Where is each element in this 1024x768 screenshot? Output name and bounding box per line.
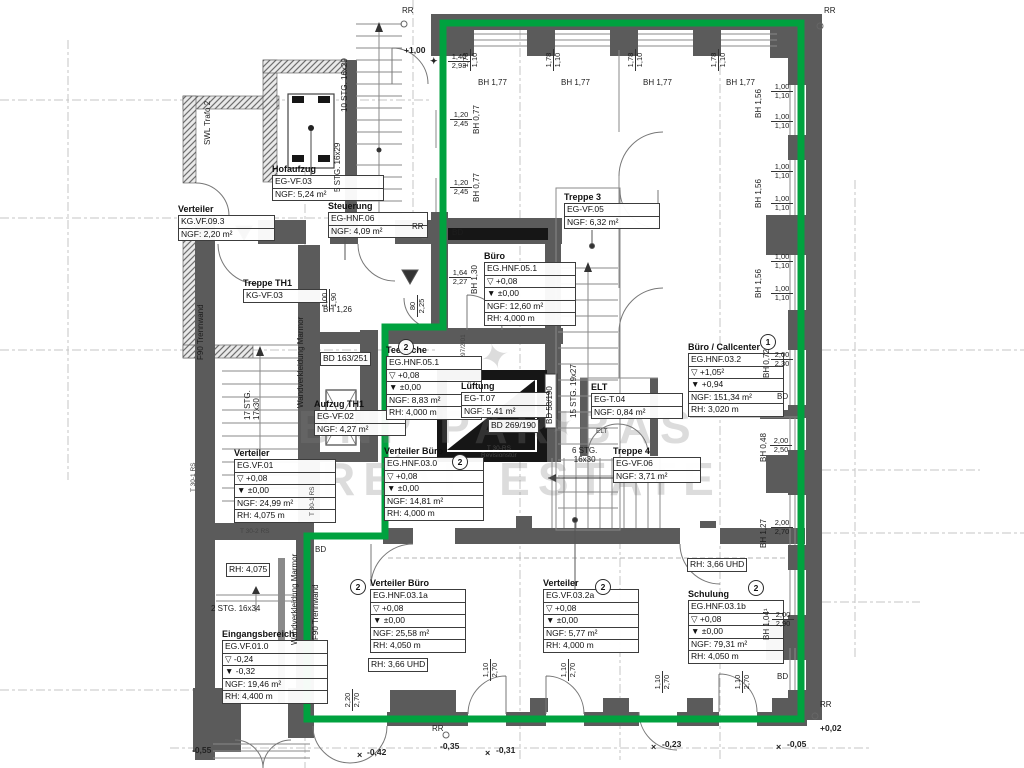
room-line: ▼ ±0,00 — [544, 614, 638, 627]
door-type-label: T 30-RS Revisionstür — [481, 445, 517, 459]
room-title: Büro — [484, 251, 576, 262]
door-dim: 1,10 2,70 — [733, 670, 751, 694]
window-dim: 2,00 2,50 — [769, 436, 793, 454]
room-line: RH: 4,000 m — [385, 507, 483, 520]
stair-count-label: 10 STG. 16x29 — [340, 58, 349, 112]
room-title: Schulung — [688, 589, 784, 600]
room-line: NGF: 19,46 m² — [223, 678, 327, 691]
room-line: EG.VF.01 — [235, 460, 335, 472]
window-height-label: BH 0,77 — [472, 173, 481, 202]
window-dim: 1,78 1,10 — [544, 48, 562, 72]
window-dim: 1,00 1,10 — [770, 194, 794, 212]
room-label-buero: Büro EG.HNF.05.1▽ +0,08▼ ±0,00NGF: 12,60… — [484, 251, 576, 326]
wall-note: F90 Trennwand — [196, 304, 205, 360]
benchmark-icon: × — [651, 742, 656, 752]
bd-box: BD 163/251 — [320, 352, 371, 366]
room-title: Treppe 3 — [564, 192, 660, 203]
window-height-label: BH 1,77 — [726, 78, 755, 87]
level-label: -0,35 — [440, 742, 459, 751]
room-title: ELT — [591, 382, 683, 393]
window-dim: 1,78 1,10 — [626, 48, 644, 72]
room-title: Verteiler Büro — [370, 578, 466, 589]
room-line: RH: 4,400 m — [223, 690, 327, 703]
level-label: +0,02 — [820, 724, 842, 733]
rr-label: RR — [820, 700, 832, 709]
window-dim: 1,64 2,27 — [448, 268, 472, 286]
room-line: ▼ ±0,00 — [385, 482, 483, 495]
door-dim: 1,10 2,70 — [481, 658, 499, 682]
rh-box: RH: 4,075 — [226, 563, 270, 577]
window-dim: 1,20 2,45 — [449, 178, 473, 196]
room-line: EG.VF.03.2a — [544, 590, 638, 602]
door-dim: 1,10 2,70 — [653, 670, 671, 694]
door-type-label: T 30-2 RS — [240, 528, 270, 535]
window-dim: 2,00 2,70 — [770, 518, 794, 536]
bd-label: BD — [777, 672, 788, 681]
benchmark-icon: × — [485, 748, 490, 758]
rh-box: RH: 3,66 UHD — [368, 658, 428, 672]
stair-count-label: 6 STG. 16x30 — [572, 446, 597, 464]
window-height-label: BH 1,26 — [323, 305, 352, 314]
room-line: EG-VF.05 — [565, 204, 659, 216]
window-height-label: BH 1,56 — [754, 179, 763, 208]
window-height-label: BH 1,77 — [561, 78, 590, 87]
room-line: ▽ +0,08 — [387, 369, 481, 382]
room-line: NGF: 6,32 m² — [565, 216, 659, 229]
room-label-verteiler-buero-1a: Verteiler Büro EG.HNF.03.1a▽ +0,08▼ ±0,0… — [370, 578, 466, 653]
rh-box: RH: 3,66 UHD — [687, 558, 747, 572]
elt-door-label: ELT — [596, 428, 607, 435]
room-line: ▼ +0,94 — [689, 378, 783, 391]
window-dim: 1,20 2,45 — [449, 110, 473, 128]
wall-note: Wandverkleidung Marmor — [290, 554, 299, 645]
room-line: ▽ +0,08 — [485, 275, 575, 288]
room-line: EG-T.07 — [462, 393, 548, 405]
room-line: NGF: 14,81 m² — [385, 495, 483, 508]
room-label-treppe3: Treppe 3 EG-VF.05NGF: 6,32 m² — [564, 192, 660, 229]
room-line: EG.HNF.03.1a — [371, 590, 465, 602]
trafo-label: SWL Trafo 2 — [203, 101, 212, 145]
stair-count-label: 17 STG. 17x30 — [243, 390, 261, 420]
room-title: Verteiler — [234, 448, 336, 459]
window-dim: 1,00 1,10 — [770, 82, 794, 100]
window-height-label: BH 1,04¹ — [762, 608, 771, 640]
stair-count-label: 2 STG. 16x34 — [211, 604, 260, 613]
room-label-verteiler-32a: Verteiler EG.VF.03.2a▽ +0,08▼ ±0,00NGF: … — [543, 578, 639, 653]
room-line: NGF: 5,24 m² — [273, 188, 383, 201]
rr-label: RR — [402, 6, 414, 15]
door-dim: 80 2,25 — [408, 294, 426, 318]
window-dim: 1,00 1,10 — [770, 112, 794, 130]
room-title: Lüftung — [461, 381, 549, 392]
room-line: EG-T.04 — [592, 394, 682, 406]
benchmark-icon: × — [776, 742, 781, 752]
wall-note: Wandverkleidung Marmor — [296, 317, 305, 408]
room-line: ▼ ±0,00 — [235, 484, 335, 497]
window-dim: 1,00 1,10 — [770, 284, 794, 302]
room-title: Treppe 4 — [613, 446, 701, 457]
room-line: NGF: 25,58 m² — [371, 627, 465, 640]
bd-label: BD — [315, 545, 326, 554]
door-type-label: T 30-1 RS — [190, 462, 197, 492]
room-line: EG.HNF.05.1 — [387, 357, 481, 369]
room-line: NGF: 5,77 m² — [544, 627, 638, 640]
rr-label: RR — [432, 724, 444, 733]
level-label: -0,42 — [367, 748, 386, 757]
room-line: EG.HNF.05.1 — [485, 263, 575, 275]
room-title: Hofaufzug — [272, 164, 384, 175]
room-line: ▽ +0,08 — [385, 470, 483, 483]
room-title: Verteiler Büro — [384, 446, 484, 457]
door-dim: 2,20 2,70 — [343, 688, 361, 712]
stair-count-label: 15 STG. 19x27 — [569, 364, 578, 418]
level-label: -0,55 — [192, 746, 211, 755]
zone-badge: 2 — [748, 580, 764, 596]
window-height-label: BH 1,77 — [643, 78, 672, 87]
window-dim: 1,00 1,10 — [770, 252, 794, 270]
room-line: RH: 4,075 m — [235, 509, 335, 522]
window-height-label: BH 1,77 — [478, 78, 507, 87]
room-line: EG.HNF.03.0 — [385, 458, 483, 470]
room-line: RH: 4,000 m — [544, 639, 638, 652]
level-label: -0,31 — [496, 746, 515, 755]
room-title: Treppe TH1 — [243, 278, 327, 289]
room-line: NGF: 0,84 m² — [592, 406, 682, 419]
window-dim: 1,78 1,10 — [709, 48, 727, 72]
room-line: ▼ -0,32 — [223, 665, 327, 678]
annotation-layer: Hofaufzug EG-VF.03NGF: 5,24 m² Verteiler… — [0, 0, 1024, 768]
window-height-label: BH 1,56 — [754, 89, 763, 118]
zone-badge: 2 — [398, 339, 414, 355]
bd-label: BD — [777, 392, 788, 401]
door-type-label: T 30-1 RS — [309, 486, 316, 516]
rr-label: RR — [412, 222, 424, 231]
room-line: NGF: 4,27 m² — [315, 423, 405, 436]
room-line: EG-VF.03 — [273, 176, 383, 188]
room-line: ▼ ±0,00 — [485, 287, 575, 300]
room-line: ▽ +0,08 — [544, 602, 638, 615]
room-title: Verteiler — [178, 204, 275, 215]
window-dim: 2,00 2,90 — [771, 610, 795, 628]
bd-label: BD 58/190 — [545, 386, 554, 424]
ref-number: 97/2/01 — [460, 334, 467, 356]
room-line: ▼ ±0,00 — [371, 614, 465, 627]
room-line: RH: 4,050 m — [371, 639, 465, 652]
zone-badge: 2 — [350, 579, 366, 595]
room-line: ▽ +0,08 — [371, 602, 465, 615]
zone-badge: 2 — [452, 454, 468, 470]
level-label: +1,00 — [404, 46, 426, 55]
room-line: NGF: 12,60 m² — [485, 300, 575, 313]
room-label-hofaufzug: Hofaufzug EG-VF.03NGF: 5,24 m² — [272, 164, 384, 201]
rr-label: RR — [824, 6, 836, 15]
stair-count-label: 5 STG. 16x29 — [333, 143, 342, 192]
window-height-label: BH 1,30 — [470, 265, 479, 294]
zone-badge: 2 — [595, 579, 611, 595]
zone-badge: 1 — [760, 334, 776, 350]
bd-box: BD 269/190 — [488, 419, 539, 433]
floor-plan-page: BNP PARIBAS REAL ESTATE ✦ ✦ ✦ Hofaufzug … — [0, 0, 1024, 768]
room-line: RH: 4,000 m — [485, 312, 575, 325]
room-line: KG-VF.03 — [244, 290, 326, 302]
room-label-verteiler-buero: Verteiler Büro EG.HNF.03.0▽ +0,08▼ ±0,00… — [384, 446, 484, 521]
window-dim: 1,00 1,10 — [770, 162, 794, 180]
room-title: Verteiler — [543, 578, 639, 589]
bd-label: BD — [452, 228, 463, 237]
benchmark-icon: ✦ — [430, 56, 438, 67]
room-line: NGF: 2,20 m² — [179, 228, 274, 241]
room-line: RH: 3,020 m — [689, 403, 783, 416]
window-height-label: BH 1,56 — [754, 269, 763, 298]
room-line: NGF: 24,99 m² — [235, 497, 335, 510]
room-line: NGF: 151,34 m² — [689, 391, 783, 404]
room-label-elt: ELT EG-T.04NGF: 0,84 m² — [591, 382, 683, 419]
wall-note: F90 Trennwand — [311, 584, 320, 640]
room-label-verteiler-eg: Verteiler EG.VF.01▽ +0,08▼ ±0,00NGF: 24,… — [234, 448, 336, 523]
door-dim: 1,10 2,70 — [559, 658, 577, 682]
room-label-lueftung: Lüftung EG-T.07NGF: 5,41 m² — [461, 381, 549, 418]
room-line: NGF: 3,71 m² — [614, 470, 700, 483]
window-dim: 1,40 2,93 — [447, 52, 471, 70]
room-label-eingangsbereich: Eingangsbereich EG.VF.01.0▽ -0,24▼ -0,32… — [222, 629, 328, 704]
room-line: EG.VF.01.0 — [223, 641, 327, 653]
room-label-verteiler-kg: Verteiler KG.VF.09.3NGF: 2,20 m² — [178, 204, 275, 241]
room-line: EG-VF.06 — [614, 458, 700, 470]
room-line: KG.VF.09.3 — [179, 216, 274, 228]
room-line: NGF: 5,41 m² — [462, 405, 548, 418]
window-height-label: BH 1,27 — [759, 519, 768, 548]
room-line: ▽ +0,08 — [235, 472, 335, 485]
window-dim: 2,00 2,30 — [770, 350, 794, 368]
room-label-steuerung: Steuerung EG-HNF.06NGF: 4,09 m² — [328, 201, 428, 238]
room-label-treppe4: Treppe 4 EG-VF.06NGF: 3,71 m² — [613, 446, 701, 483]
window-height-label: BH 0,48 — [759, 433, 768, 462]
room-line: ▽ -0,24 — [223, 653, 327, 666]
benchmark-icon: × — [357, 750, 362, 760]
level-label: -0,23 — [662, 740, 681, 749]
room-title: Steuerung — [328, 201, 428, 212]
room-line: RH: 4,050 m — [689, 650, 783, 663]
room-label-treppe-th1: Treppe TH1 KG-VF.03 — [243, 278, 327, 303]
level-label: -0,05 — [787, 740, 806, 749]
window-height-label: BH 0,77 — [472, 105, 481, 134]
